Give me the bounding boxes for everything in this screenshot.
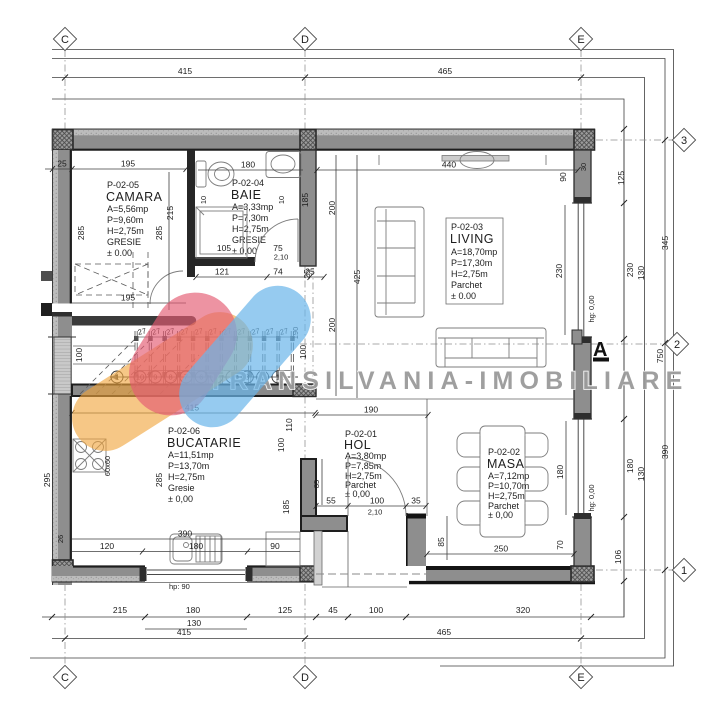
svg-text:P=10,70m: P=10,70m <box>488 481 529 491</box>
svg-text:P-02-02: P-02-02 <box>488 447 520 457</box>
svg-text:± 0,00: ± 0,00 <box>488 510 513 520</box>
svg-text:120: 120 <box>100 541 114 551</box>
svg-text:285: 285 <box>154 226 164 240</box>
svg-text:110: 110 <box>284 418 294 432</box>
svg-text:P=13,70m: P=13,70m <box>168 461 209 471</box>
svg-text:55: 55 <box>326 496 336 506</box>
svg-text:BUCATARIE: BUCATARIE <box>167 436 241 450</box>
svg-text:HOL: HOL <box>344 438 371 452</box>
svg-text:H=2,75m: H=2,75m <box>451 269 488 279</box>
svg-text:185: 185 <box>300 193 310 207</box>
svg-text:106: 106 <box>613 550 623 564</box>
svg-text:30: 30 <box>579 163 588 171</box>
svg-text:130: 130 <box>636 467 646 481</box>
svg-text:285: 285 <box>154 473 164 487</box>
svg-text:A=18,70mp: A=18,70mp <box>451 247 497 257</box>
svg-text:440: 440 <box>442 160 456 170</box>
svg-text:± 0,00: ± 0,00 <box>232 246 257 256</box>
svg-text:hg: 0,00: hg: 0,00 <box>587 484 596 511</box>
svg-text:390: 390 <box>178 529 192 539</box>
svg-text:P-02-04: P-02-04 <box>232 178 264 188</box>
svg-text:P=7,85m: P=7,85m <box>345 461 381 471</box>
svg-text:100: 100 <box>276 438 286 452</box>
svg-text:BAIE: BAIE <box>231 188 262 202</box>
svg-text:180: 180 <box>555 465 565 479</box>
svg-text:230: 230 <box>625 263 635 277</box>
svg-text:180: 180 <box>186 605 200 615</box>
svg-text:Parchet: Parchet <box>451 280 483 290</box>
svg-text:25: 25 <box>302 269 312 279</box>
svg-text:25: 25 <box>57 159 67 169</box>
svg-text:465: 465 <box>437 627 451 637</box>
svg-text:215: 215 <box>113 605 127 615</box>
svg-text:100: 100 <box>369 605 383 615</box>
svg-text:± 0.00: ± 0.00 <box>451 291 476 301</box>
svg-text:45: 45 <box>328 605 338 615</box>
svg-text:90: 90 <box>270 541 280 551</box>
svg-text:121: 121 <box>215 267 229 277</box>
svg-text:P=9,60m: P=9,60m <box>107 215 143 225</box>
svg-text:465: 465 <box>438 66 452 76</box>
svg-text:2,10: 2,10 <box>274 253 289 262</box>
svg-text:750: 750 <box>655 349 665 363</box>
svg-text:P-02-03: P-02-03 <box>451 222 483 232</box>
svg-text:100: 100 <box>298 345 308 359</box>
svg-text:60x60: 60x60 <box>103 456 112 476</box>
svg-text:75: 75 <box>273 243 283 253</box>
svg-text:C: C <box>61 672 69 684</box>
svg-text:MASA: MASA <box>487 457 525 471</box>
svg-text:285: 285 <box>76 226 86 240</box>
svg-text:125: 125 <box>616 171 626 185</box>
svg-text:190: 190 <box>364 405 378 415</box>
svg-text:LIVING: LIVING <box>450 232 494 246</box>
svg-text:295: 295 <box>42 473 52 487</box>
svg-text:180: 180 <box>189 541 203 551</box>
svg-text:H=2,75m: H=2,75m <box>488 491 525 501</box>
svg-text:185: 185 <box>281 500 291 514</box>
svg-text:90: 90 <box>558 172 568 182</box>
svg-text:E: E <box>577 672 584 684</box>
svg-text:215: 215 <box>165 206 175 220</box>
svg-text:70: 70 <box>555 540 565 550</box>
svg-text:D: D <box>301 672 309 684</box>
svg-text:hg: 0,00: hg: 0,00 <box>587 295 596 322</box>
svg-text:345: 345 <box>660 236 670 250</box>
svg-text:D: D <box>301 34 309 46</box>
svg-text:P=17,30m: P=17,30m <box>451 258 492 268</box>
svg-text:74: 74 <box>273 267 283 277</box>
svg-text:1: 1 <box>681 565 687 577</box>
svg-text:320: 320 <box>516 605 530 615</box>
svg-text:130: 130 <box>636 266 646 280</box>
svg-text:180: 180 <box>625 459 635 473</box>
svg-text:P=7,30m: P=7,30m <box>232 213 268 223</box>
svg-text:230: 230 <box>554 264 564 278</box>
svg-text:± 0,00: ± 0,00 <box>168 494 193 504</box>
svg-text:195: 195 <box>121 159 135 169</box>
svg-text:100: 100 <box>74 348 84 362</box>
svg-text:415: 415 <box>178 66 192 76</box>
svg-text:35: 35 <box>411 496 421 506</box>
svg-text:250: 250 <box>494 544 508 554</box>
svg-text:3: 3 <box>681 135 687 147</box>
svg-text:125: 125 <box>278 605 292 615</box>
svg-text:± 0,00: ± 0,00 <box>345 489 370 499</box>
svg-text:P-02-05: P-02-05 <box>107 180 139 190</box>
svg-text:85: 85 <box>312 480 321 488</box>
svg-text:P-02-06: P-02-06 <box>168 426 200 436</box>
svg-text:10: 10 <box>199 196 208 204</box>
svg-text:2,10: 2,10 <box>368 508 383 517</box>
svg-text:A=7,12mp: A=7,12mp <box>488 471 529 481</box>
svg-text:TRANSILVANIA-IMOBILIARE: TRANSILVANIA-IMOBILIARE <box>208 367 689 395</box>
svg-text:A=5,56mp: A=5,56mp <box>107 204 148 214</box>
svg-text:195: 195 <box>121 293 135 303</box>
svg-text:H=2,75m: H=2,75m <box>107 226 144 236</box>
svg-text:E: E <box>577 34 584 46</box>
svg-text:2: 2 <box>674 339 680 351</box>
svg-text:100: 100 <box>370 496 384 506</box>
svg-text:Gresie: Gresie <box>168 483 195 493</box>
svg-text:CAMARA: CAMARA <box>106 190 163 204</box>
svg-text:200: 200 <box>327 201 337 215</box>
svg-text:GRESIE: GRESIE <box>107 237 141 247</box>
svg-text:415: 415 <box>177 627 191 637</box>
svg-text:85: 85 <box>436 537 446 547</box>
svg-text:± 0.00: ± 0.00 <box>107 248 132 258</box>
svg-text:10: 10 <box>277 196 286 204</box>
svg-text:H=2,75m: H=2,75m <box>168 472 205 482</box>
svg-text:A=3,80mp: A=3,80mp <box>345 451 386 461</box>
svg-text:A=11,51mp: A=11,51mp <box>168 450 214 460</box>
svg-text:C: C <box>61 34 69 46</box>
svg-text:180: 180 <box>241 160 255 170</box>
svg-text:105: 105 <box>217 243 231 253</box>
svg-text:200: 200 <box>327 318 337 332</box>
svg-text:26: 26 <box>56 535 65 543</box>
svg-text:hp: 90: hp: 90 <box>169 582 190 591</box>
svg-text:H=2,75m: H=2,75m <box>232 224 269 234</box>
svg-text:390: 390 <box>660 445 670 459</box>
